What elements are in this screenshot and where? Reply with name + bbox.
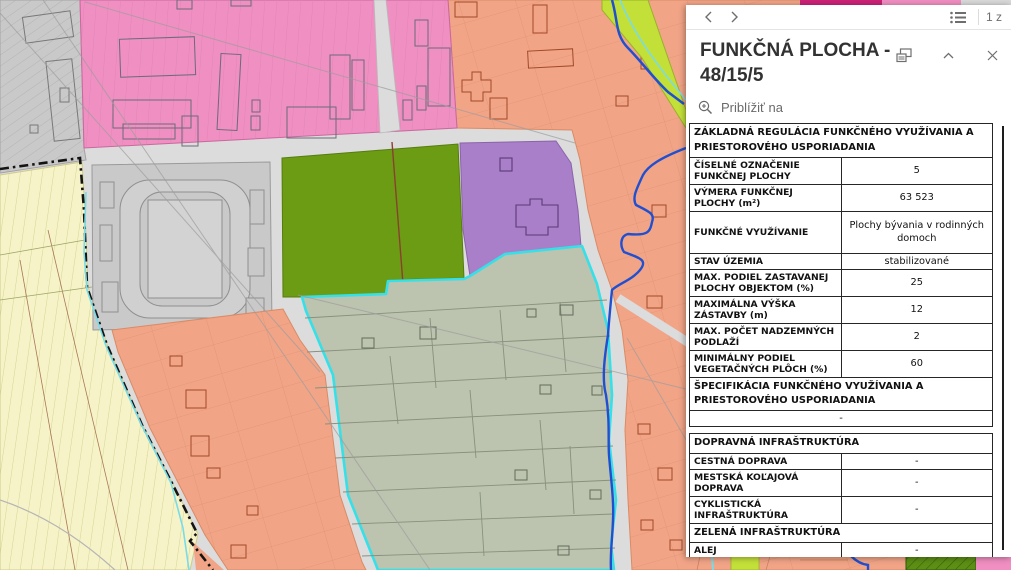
table-row: CESTNÁ DOPRAVA -	[690, 453, 993, 469]
next-feature-button[interactable]	[721, 6, 747, 28]
table-section-header: ZÁKLADNÁ REGULÁCIA FUNKČNÉHO VYUŽÍVANIA …	[690, 124, 993, 157]
feature-popup-panel: 1 z FUNKČNÁ PLOCHA - 48/15/5	[686, 5, 1011, 557]
table-section-header: ŠPECIFIKÁCIA FUNKČNÉHO VYUŽÍVANIA A PRIE…	[690, 378, 993, 411]
dock-icon	[896, 48, 912, 63]
row-value: Plochy bývania v rodinných domoch	[841, 211, 993, 253]
map-zone-gray-northwest[interactable]	[0, 0, 86, 173]
zoom-to-label: Priblížiť na	[721, 100, 783, 115]
row-value: stabilizované	[841, 253, 993, 269]
table-cutoff-border	[1002, 126, 1004, 550]
chevron-right-icon	[730, 11, 739, 23]
close-button[interactable]	[977, 42, 1007, 68]
row-label: STAV ÚZEMIA	[690, 253, 842, 269]
row-label: ČÍSELNÉ OZNAČENIE FUNKČNEJ PLOCHY	[690, 157, 842, 184]
row-label: VÝMERA FUNKČNEJ PLOCHY (m²)	[690, 184, 842, 211]
list-icon	[950, 11, 966, 24]
row-value: 63 523	[841, 184, 993, 211]
row-value: 25	[841, 270, 993, 297]
chevron-left-icon	[704, 11, 713, 23]
collapse-button[interactable]	[933, 42, 963, 68]
section-header-label: ZELENÁ INFRAŠTRUKTÚRA	[690, 523, 993, 542]
row-label: CESTNÁ DOPRAVA	[690, 453, 842, 469]
close-icon	[987, 50, 998, 61]
table-row: CYKLISTICKÁ INFRAŠTRUKTÚRA -	[690, 496, 993, 523]
row-label: MAX. PODIEL ZASTAVANEJ PLOCHY OBJEKTOM (…	[690, 270, 842, 297]
section-header-label: ŠPECIFIKÁCIA FUNKČNÉHO VYUŽÍVANIA A PRIE…	[690, 378, 993, 411]
table-row: -	[690, 411, 993, 427]
row-value: -	[841, 496, 993, 523]
table-row: MINIMÁLNY PODIEL VEGETAČNÝCH PLÔCH (%) 6…	[690, 351, 993, 378]
row-label: MAXIMÁLNA VÝŠKA ZÁSTAVBY (m)	[690, 297, 842, 324]
table-row: ČÍSELNÉ OZNAČENIE FUNKČNEJ PLOCHY 5	[690, 157, 993, 184]
popup-pager-bar: 1 z	[686, 5, 1011, 30]
regulation-table-infrastructure: DOPRAVNÁ INFRAŠTRUKTÚRA CESTNÁ DOPRAVA -…	[689, 433, 993, 557]
map-zone-stadium[interactable]	[92, 162, 272, 330]
row-label: MINIMÁLNY PODIEL VEGETAČNÝCH PLÔCH (%)	[690, 351, 842, 378]
row-label: MAX. POČET NADZEMNÝCH PODLAŽÍ	[690, 324, 842, 351]
table-section-header: DOPRAVNÁ INFRAŠTRUKTÚRA	[690, 434, 993, 453]
row-value: -	[841, 453, 993, 469]
zoom-to-icon	[698, 100, 713, 115]
row-value: -	[841, 469, 993, 496]
pager-divider	[978, 9, 979, 25]
table-row: STAV ÚZEMIA stabilizované	[690, 253, 993, 269]
zoom-to-button[interactable]: Priblížiť na	[686, 92, 1011, 121]
row-value: 60	[841, 351, 993, 378]
dock-button[interactable]	[889, 42, 919, 68]
page-title: FUNKČNÁ PLOCHA - 48/15/5	[700, 39, 915, 88]
row-label: CYKLISTICKÁ INFRAŠTRUKTÚRA	[690, 496, 842, 523]
row-value: 5	[841, 157, 993, 184]
table-row: MESTSKÁ KOĽAJOVÁ DOPRAVA -	[690, 469, 993, 496]
row-label: ALEJ	[690, 543, 842, 557]
table-row: FUNKČNÉ VYUŽÍVANIE Plochy bývania v rodi…	[690, 211, 993, 253]
table-row: MAX. POČET NADZEMNÝCH PODLAŽÍ 2	[690, 324, 993, 351]
table-row: MAX. PODIEL ZASTAVANEJ PLOCHY OBJEKTOM (…	[690, 270, 993, 297]
popup-content: ZÁKLADNÁ REGULÁCIA FUNKČNÉHO VYUŽÍVANIA …	[686, 121, 1011, 557]
collapse-icon	[943, 52, 954, 59]
table-section-header: ZELENÁ INFRAŠTRUKTÚRA	[690, 523, 993, 542]
regulation-table-basic: ZÁKLADNÁ REGULÁCIA FUNKČNÉHO VYUŽÍVANIA …	[689, 123, 993, 427]
previous-feature-button[interactable]	[695, 6, 721, 28]
map-zone-pink[interactable]	[80, 0, 457, 148]
table-row: MAXIMÁLNA VÝŠKA ZÁSTAVBY (m) 12	[690, 297, 993, 324]
section-header-label: ZÁKLADNÁ REGULÁCIA FUNKČNÉHO VYUŽÍVANIA …	[690, 124, 993, 157]
table-row: VÝMERA FUNKČNEJ PLOCHY (m²) 63 523	[690, 184, 993, 211]
row-label: FUNKČNÉ VYUŽÍVANIE	[690, 211, 842, 253]
row-value: 12	[841, 297, 993, 324]
feature-count: 1 z	[986, 10, 1002, 24]
row-value: 2	[841, 324, 993, 351]
feature-list-button[interactable]	[945, 6, 971, 28]
row-value: -	[841, 543, 993, 557]
section-header-label: DOPRAVNÁ INFRAŠTRUKTÚRA	[690, 434, 993, 453]
table-row: ALEJ -	[690, 543, 993, 557]
row-value: -	[690, 411, 993, 427]
popup-titlebar: FUNKČNÁ PLOCHA - 48/15/5	[686, 30, 1011, 92]
row-label: MESTSKÁ KOĽAJOVÁ DOPRAVA	[690, 469, 842, 496]
